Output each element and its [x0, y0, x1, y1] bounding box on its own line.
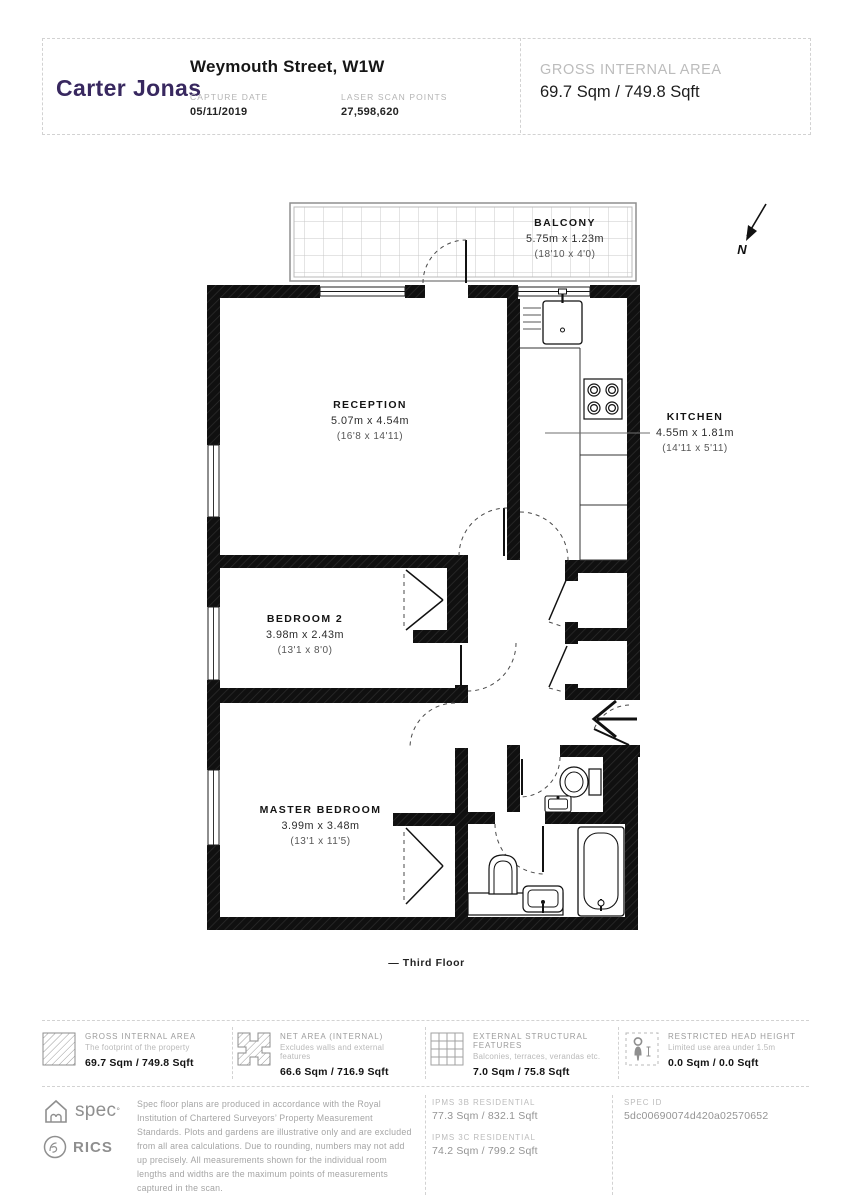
- ipms-3c-value: 74.2 Sqm / 799.2 Sqft: [432, 1145, 538, 1157]
- bathroom-basin: [523, 886, 563, 913]
- legend-text: EXTERNAL STRUCTURAL FEATURES Balconies, …: [473, 1032, 610, 1078]
- legend-top-divider: [42, 1020, 809, 1021]
- kitchen-label: KITCHEN 4.55m x 1.81m (14'11 x 5'11): [635, 410, 755, 457]
- room-name: KITCHEN: [635, 410, 755, 426]
- ipms-3b-value: 77.3 Sqm / 832.1 Sqft: [432, 1110, 538, 1122]
- disclaimer-text: Spec floor plans are produced in accorda…: [137, 1097, 417, 1195]
- kitchen-hob: [584, 379, 622, 419]
- room-dims-m: 5.07m x 4.54m: [290, 414, 450, 430]
- legend-separator: [232, 1027, 233, 1079]
- room-dims-m: 5.75m x 1.23m: [490, 232, 640, 248]
- room-name: BEDROOM 2: [230, 612, 380, 628]
- room-dims-ft: (14'11 x 5'11): [635, 441, 755, 457]
- room-dims-m: 3.98m x 2.43m: [230, 628, 380, 644]
- rics-logo: RICS: [42, 1134, 113, 1160]
- wc-basin: [545, 796, 571, 812]
- legend-subtitle: Limited use area under 1.5m: [668, 1043, 796, 1052]
- bathroom-toilet: [489, 855, 517, 894]
- legend-item-external-features: EXTERNAL STRUCTURAL FEATURES Balconies, …: [430, 1032, 610, 1078]
- legend-value: 69.7 Sqm / 749.8 Sqft: [85, 1057, 196, 1069]
- legend-subtitle: Excludes walls and external features: [280, 1043, 417, 1061]
- room-name: RECEPTION: [290, 398, 450, 414]
- balcony-label: BALCONY 5.75m x 1.23m (18'10 x 4'0): [490, 216, 640, 263]
- room-dims-ft: (13'1 x 11'5): [238, 834, 403, 850]
- grid-icon: [430, 1032, 464, 1066]
- legend-subtitle: The footprint of the property: [85, 1043, 196, 1052]
- legend-separator: [618, 1027, 619, 1079]
- floor-plan-drawing: [0, 0, 853, 1000]
- ipms-3c-label: IPMS 3C RESIDENTIAL: [432, 1133, 538, 1142]
- rics-logo-text: RICS: [73, 1139, 113, 1156]
- reception-label: RECEPTION 5.07m x 4.54m (16'8 x 14'11): [290, 398, 450, 445]
- spec-id-block: SPEC ID 5dc00690074d420a02570652: [624, 1098, 768, 1122]
- master-bedroom-label: MASTER BEDROOM 3.99m x 3.48m (13'1 x 11'…: [238, 803, 403, 850]
- net-hatch-icon: [237, 1032, 271, 1066]
- person-height-icon: [625, 1032, 659, 1066]
- legend-title: EXTERNAL STRUCTURAL FEATURES: [473, 1032, 610, 1050]
- legend-separator: [425, 1027, 426, 1079]
- spec-id-label: SPEC ID: [624, 1098, 768, 1107]
- ipms-3b-block: IPMS 3B RESIDENTIAL 77.3 Sqm / 832.1 Sqf…: [432, 1098, 538, 1122]
- spec-logo: spec °: [42, 1097, 120, 1125]
- legend-item-restricted-height: RESTRICTED HEAD HEIGHT Limited use area …: [625, 1032, 805, 1069]
- ipms-3b-label: IPMS 3B RESIDENTIAL: [432, 1098, 538, 1107]
- room-name: BALCONY: [490, 216, 640, 232]
- legend-bottom-divider: [42, 1086, 809, 1087]
- diagonal-hatch-icon: [42, 1032, 76, 1066]
- footer-separator: [425, 1095, 426, 1195]
- legend-item-gross-internal-area: GROSS INTERNAL AREA The footprint of the…: [42, 1032, 224, 1069]
- floorplan-page: Carter Jonas Weymouth Street, W1W CAPTUR…: [0, 0, 853, 1200]
- north-label: N: [730, 242, 754, 257]
- spec-logo-mark: °: [116, 1106, 120, 1116]
- room-dims-m: 3.99m x 3.48m: [238, 819, 403, 835]
- legend-subtitle: Balconies, terraces, verandas etc.: [473, 1052, 610, 1061]
- bathtub: [578, 827, 624, 916]
- spec-id-value: 5dc00690074d420a02570652: [624, 1110, 768, 1122]
- legend-title: NET AREA (INTERNAL): [280, 1032, 417, 1041]
- footer-separator: [612, 1095, 613, 1195]
- rics-lion-icon: [42, 1134, 68, 1160]
- house-icon: [42, 1097, 70, 1125]
- wc-toilet: [560, 767, 601, 797]
- legend-value: 7.0 Sqm / 75.8 Sqft: [473, 1066, 610, 1078]
- bedroom2-label: BEDROOM 2 3.98m x 2.43m (13'1 x 8'0): [230, 612, 380, 659]
- legend-title: GROSS INTERNAL AREA: [85, 1032, 196, 1041]
- legend-value: 0.0 Sqm / 0.0 Sqft: [668, 1057, 796, 1069]
- legend-value: 66.6 Sqm / 716.9 Sqft: [280, 1066, 417, 1078]
- room-dims-ft: (16'8 x 14'11): [290, 429, 450, 445]
- north-arrow-icon: [746, 204, 766, 241]
- room-dims-m: 4.55m x 1.81m: [635, 426, 755, 442]
- legend-item-net-area: NET AREA (INTERNAL) Excludes walls and e…: [237, 1032, 417, 1078]
- legend-title: RESTRICTED HEAD HEIGHT: [668, 1032, 796, 1041]
- legend-text: GROSS INTERNAL AREA The footprint of the…: [85, 1032, 196, 1069]
- room-dims-ft: (18'10 x 4'0): [490, 247, 640, 263]
- legend-text: NET AREA (INTERNAL) Excludes walls and e…: [280, 1032, 417, 1078]
- ipms-3c-block: IPMS 3C RESIDENTIAL 74.2 Sqm / 799.2 Sqf…: [432, 1133, 538, 1157]
- spec-logo-text: spec: [75, 1100, 116, 1122]
- legend-text: RESTRICTED HEAD HEIGHT Limited use area …: [668, 1032, 796, 1069]
- floor-name-label: — Third Floor: [0, 957, 853, 969]
- room-dims-ft: (13'1 x 8'0): [230, 643, 380, 659]
- room-name: MASTER BEDROOM: [238, 803, 403, 819]
